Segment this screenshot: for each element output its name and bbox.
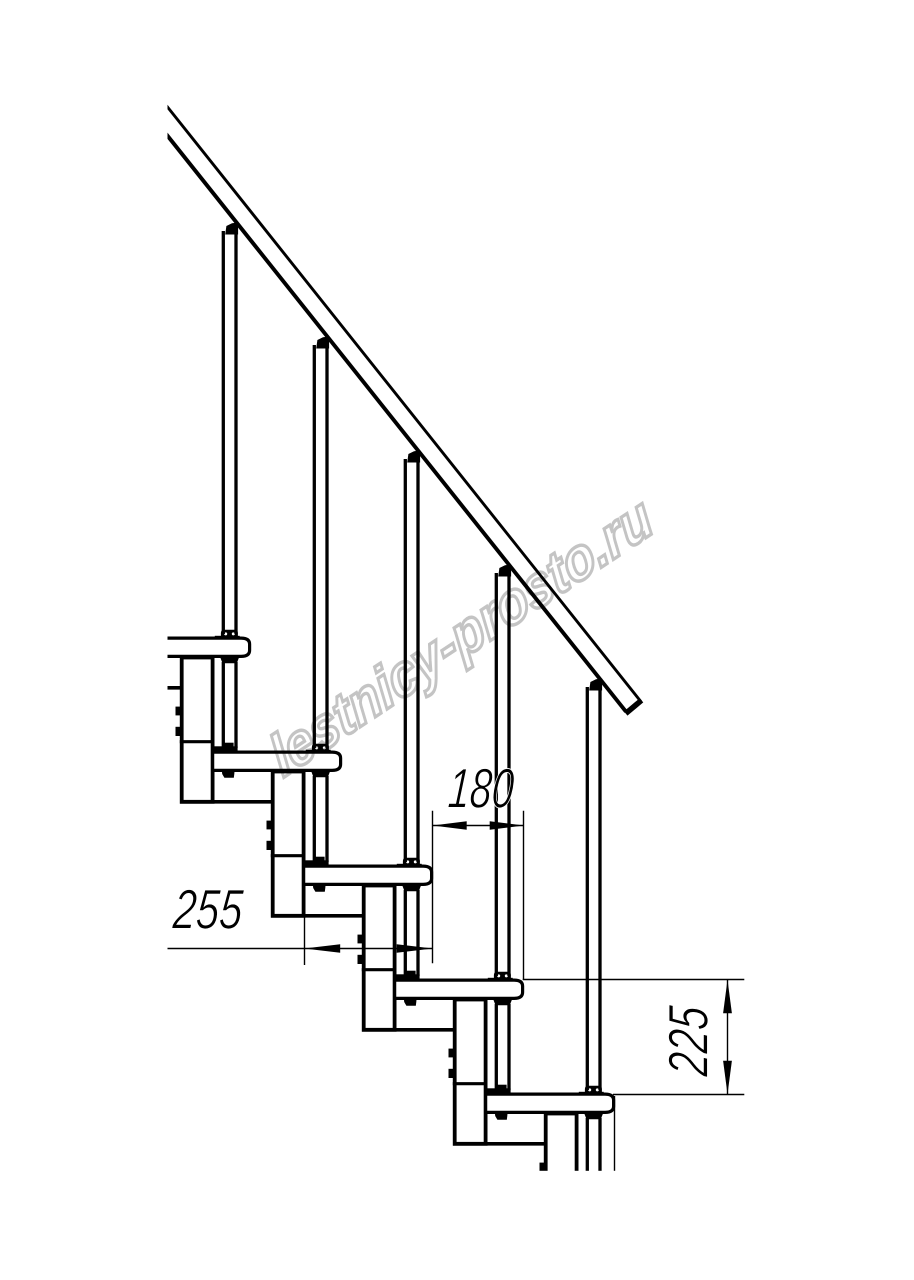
svg-text:255: 255 bbox=[170, 879, 245, 941]
svg-text:225: 225 bbox=[658, 1004, 720, 1079]
svg-text:180: 180 bbox=[446, 758, 516, 820]
